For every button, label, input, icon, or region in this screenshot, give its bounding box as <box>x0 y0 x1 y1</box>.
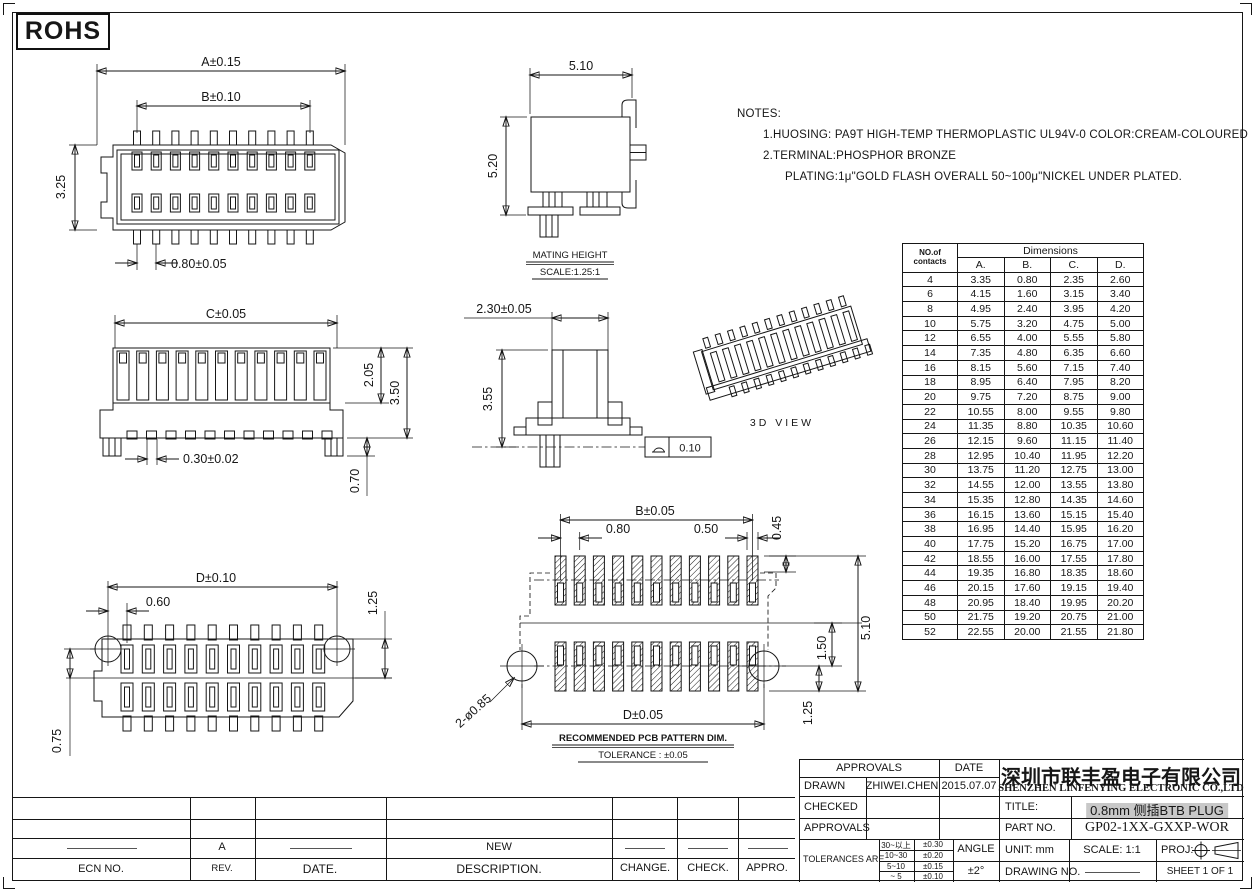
drawing-no-label: DRAWING NO. <box>1005 866 1080 878</box>
front-view-slots <box>117 351 326 400</box>
tol-range-1: 30~以上 <box>881 840 911 851</box>
angle-value: ±2° <box>968 865 985 877</box>
note-line-2: 2.TERMINAL:PHOSPHOR BRONZE <box>763 146 1249 167</box>
table-row: 4620.1517.6019.1519.40 <box>903 581 1144 596</box>
dash <box>625 848 665 849</box>
dimensions-group-header: Dimensions <box>958 244 1144 258</box>
table-row: 2210.558.009.559.80 <box>903 404 1144 419</box>
angle-label: ANGLE <box>957 843 994 855</box>
note-line-3: PLATING:1μ"GOLD FLASH OVERALL 50~100μ"NI… <box>785 167 1249 188</box>
top-view-drawing: A±0.15 B±0.10 3.25 0.80±0.05 <box>53 44 448 299</box>
dash <box>1085 872 1140 873</box>
col-c: C. <box>1051 258 1098 273</box>
drawn-label: DRAWN <box>804 780 845 792</box>
mating-height-view-drawing: 5.10 5.20 MATING HEIGHT SCALE:1.25:1 <box>486 56 701 286</box>
dash <box>688 848 728 849</box>
dim-pitch-label: 0.80±0.05 <box>171 257 227 271</box>
dim-height-label: 3.25 <box>54 175 68 199</box>
title-value: 0.8mm 侧插BTB PLUG <box>1086 803 1228 818</box>
top-view-contact-row2 <box>132 194 315 212</box>
description-label: DESCRIPTION. <box>456 862 541 876</box>
table-row: 43.350.802.352.60 <box>903 272 1144 287</box>
dim-b-label: B±0.10 <box>201 90 241 104</box>
front-view-drawing: C±0.05 2.05 3.50 0.30±0.02 0.70 <box>63 291 448 526</box>
table-row: 2411.358.8010.3510.60 <box>903 419 1144 434</box>
bottom-view-lower-contacts <box>121 683 325 711</box>
dim-pad-label: 0.50 <box>694 522 718 536</box>
rohs-label: ROHS <box>25 17 101 46</box>
table-row: 3816.9514.4015.9516.20 <box>903 522 1144 537</box>
table-row: 2812.9510.4011.9512.20 <box>903 448 1144 463</box>
mating-height-caption: MATING HEIGHT <box>533 250 608 261</box>
part-no-value: GP02-1XX-GXXP-WOR <box>1085 820 1229 836</box>
col-a: A. <box>958 258 1005 273</box>
table-row: 5021.7519.2020.7521.00 <box>903 610 1144 625</box>
description-value: NEW <box>486 841 512 853</box>
dim-gap-label: 1.50 <box>815 636 829 660</box>
dim-d-label: D±0.10 <box>196 571 236 585</box>
bottom-view-lower-pins <box>123 716 323 731</box>
dim-total-label: 3.50 <box>388 381 402 405</box>
drawing-sheet: ROHS NOTES: 1.HUOSING: PA9T HIGH-TEMP TH… <box>0 0 1255 892</box>
dim-d-label: D±0.05 <box>623 708 663 722</box>
unit-label: UNIT: mm <box>1005 844 1054 856</box>
dim-a-label: A±0.15 <box>201 55 241 69</box>
third-angle-projection-icon <box>1192 841 1242 860</box>
table-row: 3013.7511.2012.7513.00 <box>903 463 1144 478</box>
table-row: 4419.3516.8018.3518.60 <box>903 566 1144 581</box>
dim-offset-label: 0.60 <box>146 595 170 609</box>
dim-upper-label: 2.05 <box>362 363 376 387</box>
flatness-value: 0.10 <box>679 443 700 455</box>
dim-b-label: B±0.05 <box>635 504 675 518</box>
approvals-header: APPROVALS <box>836 762 902 774</box>
approvals-row-label: APPROVALS <box>804 822 870 834</box>
dim-pitch-label: 0.80 <box>606 522 630 536</box>
dim-width-label: 2.30±0.05 <box>476 302 532 316</box>
dim-right-label: 1.25 <box>366 591 380 615</box>
appro-label: APPRO. <box>746 862 788 874</box>
check-label: CHECK. <box>687 862 729 874</box>
contacts-header: NO.of contacts <box>903 244 958 273</box>
dim-height-label: 3.55 <box>481 387 495 411</box>
dash <box>748 848 788 849</box>
tol-value-4: ±0.10 <box>923 872 943 881</box>
dash <box>290 848 352 849</box>
company-name-en: SHENZHEN LINFENYING ELECTRONIC CO.,LTD <box>998 783 1244 794</box>
date-label: DATE. <box>303 862 337 876</box>
date-header: DATE <box>955 762 984 774</box>
mating-scale-caption: SCALE:1.25:1 <box>540 267 600 278</box>
top-view-upper-pins <box>134 131 314 145</box>
tol-value-3: ±0.15 <box>923 862 943 871</box>
tol-range-2: 10~30 <box>885 851 907 860</box>
tol-range-4: ~ 5 <box>890 872 901 881</box>
table-row: 105.753.204.755.00 <box>903 316 1144 331</box>
top-view-contact-row1 <box>132 152 315 170</box>
dim-height-label: 5.20 <box>486 154 500 178</box>
ecn-label: ECN NO. <box>78 863 124 875</box>
notes-block: NOTES: 1.HUOSING: PA9T HIGH-TEMP THERMOP… <box>737 104 1249 188</box>
col-b: B. <box>1004 258 1051 273</box>
rev-label: REV. <box>211 863 232 874</box>
proj-label: PROJ: <box>1161 844 1193 856</box>
col-d: D. <box>1097 258 1144 273</box>
part-no-label: PART NO. <box>1005 822 1056 834</box>
bottom-view-drawing: D±0.10 0.60 0.75 1.25 <box>40 551 450 766</box>
bottom-view-upper-pins <box>123 625 323 640</box>
tol-range-3: 5~10 <box>887 862 905 871</box>
bottom-view-upper-contacts <box>121 645 325 673</box>
title-block: APPROVALS DATE DRAWN ZHIWEI.CHEN 2015.07… <box>799 759 1244 882</box>
dash <box>67 848 137 849</box>
table-row: 5222.5520.0021.5521.80 <box>903 625 1144 640</box>
table-row: 64.151.603.153.40 <box>903 287 1144 302</box>
tolerances-label: TOLERANCES ARE <box>803 854 884 864</box>
table-row: 3616.1513.6015.1515.40 <box>903 507 1144 522</box>
flatness-icon <box>652 448 665 452</box>
tol-value-2: ±0.20 <box>923 851 943 860</box>
title-label: TITLE: <box>1005 801 1038 813</box>
table-row: 3214.5512.0013.5513.80 <box>903 478 1144 493</box>
pcb-pattern-drawing: B±0.05 0.80 0.50 0.45 1.50 5.10 1.25 D±0… <box>434 488 899 778</box>
table-row: 209.757.208.759.00 <box>903 390 1144 405</box>
table-row: 168.155.607.157.40 <box>903 360 1144 375</box>
table-row: 2612.159.6011.1511.40 <box>903 434 1144 449</box>
drawn-date: 2015.07.07 <box>941 780 996 792</box>
iso-view-drawing: 3D VIEW <box>676 276 896 441</box>
change-label: CHANGE. <box>620 862 670 874</box>
holes-callout: 2-ø0.85 <box>453 691 494 730</box>
table-row: 4218.5516.0017.5517.80 <box>903 551 1144 566</box>
dim-pad-label: 0.30±0.02 <box>183 452 239 466</box>
dim-edge-label: 0.45 <box>770 516 784 540</box>
table-row: 3415.3512.8014.3514.60 <box>903 493 1144 508</box>
tol-value-1: ±0.30 <box>923 840 943 849</box>
note-line-1: 1.HUOSING: PA9T HIGH-TEMP THERMOPLASTIC … <box>763 125 1249 146</box>
table-row: 4017.7515.2016.7517.00 <box>903 537 1144 552</box>
drawn-name: ZHIWEI.CHEN <box>866 780 939 792</box>
table-row: 147.354.806.356.60 <box>903 346 1144 361</box>
table-row: 188.956.407.958.20 <box>903 375 1144 390</box>
rev-value: A <box>218 841 225 853</box>
pcb-tolerance: TOLERANCE : ±0.05 <box>598 750 688 761</box>
dim-width-label: 5.10 <box>569 59 593 73</box>
dim-left-label: 0.75 <box>50 729 64 753</box>
pcb-upper-pads <box>555 556 758 605</box>
sheet-label: SHEET 1 OF 1 <box>1167 866 1234 877</box>
iso-lower-pins <box>729 344 872 397</box>
dim-foot-label: 0.70 <box>348 469 362 493</box>
table-row: 84.952.403.954.20 <box>903 302 1144 317</box>
table-row: 4820.9518.4019.9520.20 <box>903 595 1144 610</box>
dimensions-table: NO.of contacts Dimensions A. B. C. D. 43… <box>902 243 1144 640</box>
notes-heading: NOTES: <box>737 104 1249 125</box>
table-row: 126.554.005.555.80 <box>903 331 1144 346</box>
revision-table: A NEW ECN NO. REV. DATE. DESCRIPTION. CH… <box>12 797 795 881</box>
scale-label: SCALE: 1:1 <box>1083 844 1140 856</box>
pcb-caption: RECOMMENDED PCB PATTERN DIM. <box>559 733 727 744</box>
checked-label: CHECKED <box>804 801 858 813</box>
top-view-lower-pins <box>134 230 314 244</box>
pcb-lower-pads <box>555 642 758 691</box>
dim-c-label: C±0.05 <box>206 307 246 321</box>
iso-caption: 3D VIEW <box>750 417 814 429</box>
dim-total-label: 5.10 <box>859 616 873 640</box>
dim-hole-label: 1.25 <box>801 701 815 725</box>
